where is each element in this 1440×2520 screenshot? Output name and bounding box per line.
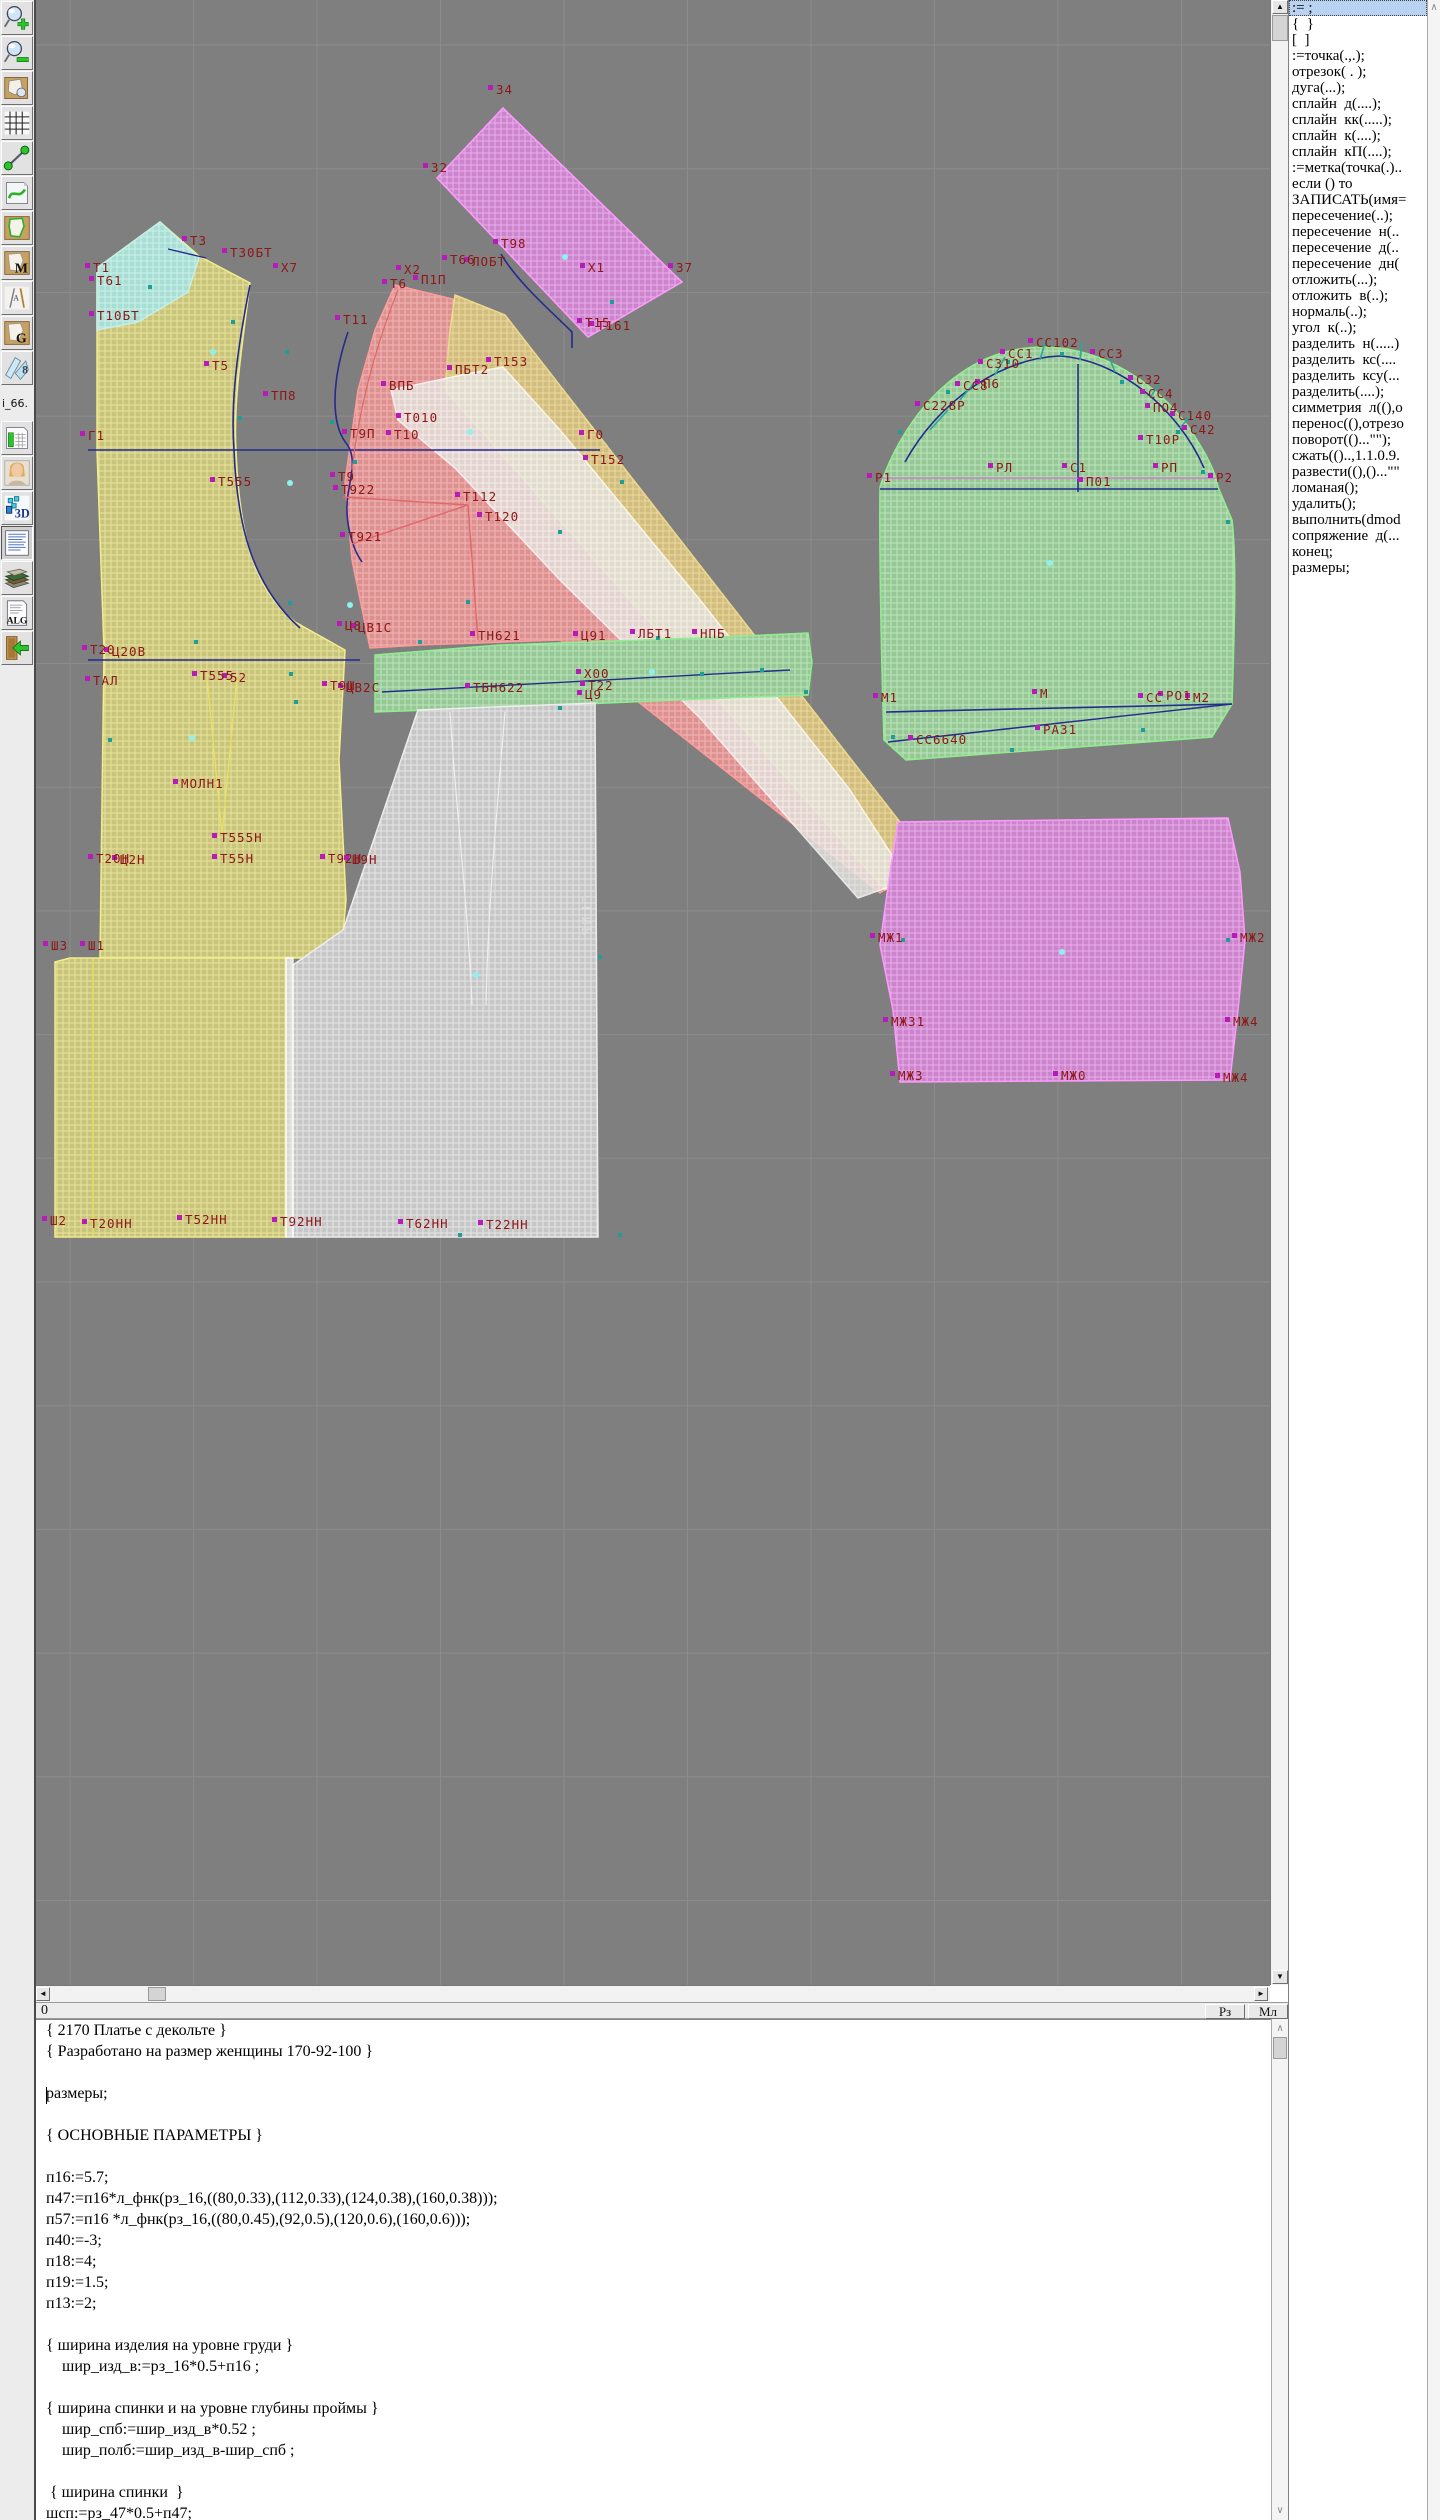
curve-node-marker[interactable] (700, 672, 704, 676)
fold-label: СГИБ (578, 895, 593, 938)
editor-line: шир_изд_в:=рз_16*0.5+п16 ; (36, 2356, 1271, 2377)
point-label: Т921 (348, 529, 382, 544)
point-label: Т3 (190, 233, 207, 248)
point-marker[interactable] (88, 854, 93, 859)
point-marker[interactable] (80, 941, 85, 946)
function-item[interactable]: перенос((),отрезо (1289, 416, 1427, 432)
script-editor[interactable]: { 2170 Платье с декольте }{ Разработано … (36, 2019, 1271, 2520)
curve-node-marker[interactable] (1141, 728, 1145, 732)
curve-node-marker[interactable] (946, 390, 950, 394)
editor-line: { ширина изделия на уровне груди } (36, 2335, 1271, 2356)
point-marker[interactable] (382, 279, 387, 284)
editor-line: п16:=5.7; (36, 2167, 1271, 2188)
point-marker[interactable] (396, 413, 401, 418)
editor-line: п13:=2; (36, 2293, 1271, 2314)
text-cursor (46, 2087, 47, 2104)
function-item[interactable]: { } (1289, 16, 1427, 32)
editor-line (36, 2104, 1271, 2125)
point-marker[interactable] (335, 315, 340, 320)
curve-node-marker[interactable] (466, 600, 470, 604)
point-marker[interactable] (333, 485, 338, 490)
model-photo-icon[interactable] (1, 456, 33, 490)
point-marker[interactable] (210, 477, 215, 482)
point-marker[interactable] (1208, 473, 1213, 478)
function-item[interactable]: отложить(...); (1289, 272, 1427, 288)
editor-scroll-down-icon[interactable]: ∨ (1272, 2505, 1288, 2516)
point-label: Т92НН (280, 1214, 323, 1229)
curve-node-marker[interactable] (294, 700, 298, 704)
point-label: С1 (1070, 460, 1087, 475)
function-item[interactable]: удалить(); (1289, 496, 1427, 512)
curve-node-marker[interactable] (285, 350, 289, 354)
function-list-panel: := ;{ }[ ]:=точка(.,.);отрезок( . );дуга… (1288, 0, 1427, 2520)
vscroll-thumb[interactable] (1272, 15, 1288, 41)
point-label: Х7 (281, 260, 298, 275)
point-label: МЖ1 (878, 930, 904, 945)
point-marker[interactable] (192, 671, 197, 676)
point-marker[interactable] (579, 430, 584, 435)
point-marker[interactable] (212, 854, 217, 859)
function-item[interactable]: конец; (1289, 544, 1427, 560)
point-label: Т6 (390, 276, 407, 291)
point-label: ПО4 (1153, 400, 1179, 415)
editor-line: п47:=п16*л_фнк(рз_16,((80,0.33),(112,0.3… (36, 2188, 1271, 2209)
pattern-cad-app: MAG8i_66.3DALG Т1Т61Т3Т30БТХ7Т10БТТ5Т11Т… (0, 0, 1440, 2520)
point-label: ТАЛ (93, 673, 119, 688)
editor-line: шсп:=рз_47*0.5+п47; (36, 2503, 1271, 2520)
point-label: Т22НН (486, 1217, 529, 1232)
point-marker[interactable] (386, 430, 391, 435)
curve-node-marker[interactable] (898, 430, 902, 434)
point-label: СС102 (1036, 335, 1079, 350)
size-table-icon[interactable] (1, 421, 33, 455)
point-marker[interactable] (580, 263, 585, 268)
point-marker[interactable] (1128, 375, 1133, 380)
panel-vscrollbar[interactable]: ∧ (1427, 0, 1440, 2520)
point-marker[interactable] (1000, 349, 1005, 354)
editor-line: { ширина спинки и на уровне глубины прой… (36, 2398, 1271, 2419)
function-item[interactable]: сплайн к(....); (1289, 128, 1427, 144)
status-bar: 0 Рз Мл (36, 2002, 1288, 2019)
function-item[interactable]: дуга(...); (1289, 80, 1427, 96)
point-marker[interactable] (340, 532, 345, 537)
point-label: МОЛН1 (181, 776, 224, 791)
svg-text:G: G (16, 332, 27, 347)
point-label: Т55Н (220, 851, 254, 866)
curve-node-marker[interactable] (598, 955, 602, 959)
pattern-piece-front-skirt-panel[interactable] (55, 958, 286, 1237)
point-marker[interactable] (478, 1220, 483, 1225)
point-label: ТП8 (271, 388, 297, 403)
point-marker[interactable] (82, 1219, 87, 1224)
editor-scroll-up-icon[interactable]: ∧ (1272, 2023, 1288, 2034)
editor-line (36, 2314, 1271, 2335)
point-label: М2 (1193, 690, 1210, 705)
point-marker[interactable] (1153, 463, 1158, 468)
point-marker[interactable] (488, 85, 493, 90)
function-item[interactable]: разделить н(.....) (1289, 336, 1427, 352)
editor-line: п19:=1.5; (36, 2272, 1271, 2293)
pattern-sheet-icon[interactable] (1, 71, 33, 105)
point-marker[interactable] (1215, 1073, 1220, 1078)
point-marker[interactable] (915, 401, 920, 406)
function-item[interactable]: нормаль(..); (1289, 304, 1427, 320)
point-label: ПБТ2 (455, 362, 489, 377)
exit-icon[interactable] (1, 631, 33, 665)
point-marker[interactable] (381, 381, 386, 386)
function-item[interactable]: :=метка(точка(.).. (1289, 160, 1427, 176)
point-marker[interactable] (583, 455, 588, 460)
grid-icon[interactable] (1, 106, 33, 140)
point-label: ВПБ (389, 378, 415, 393)
editor-line: { 2170 Платье с декольте } (36, 2020, 1271, 2041)
rz-button[interactable]: Рз (1205, 2004, 1245, 2019)
curve-node-marker[interactable] (804, 690, 808, 694)
point-marker[interactable] (576, 669, 581, 674)
pattern-piece-front-bodice[interactable] (97, 222, 346, 958)
point-label: Т10Р (1146, 432, 1180, 447)
function-item[interactable]: сплайн кк(.....); (1289, 112, 1427, 128)
curve-node-marker[interactable] (353, 460, 357, 464)
point-label: П1П (421, 272, 447, 287)
point-label: М1 (881, 690, 898, 705)
point-marker[interactable] (455, 492, 460, 497)
curve-node-marker[interactable] (1060, 352, 1064, 356)
point-marker[interactable] (1032, 689, 1037, 694)
point-label: Т52НН (185, 1212, 228, 1227)
curve-node-marker[interactable] (231, 320, 235, 324)
point-marker[interactable] (177, 1215, 182, 1220)
point-label: М (1040, 686, 1049, 701)
piece-center-dot (1047, 560, 1053, 566)
point-marker[interactable] (883, 1017, 888, 1022)
editor-line: шир_полб:=шир_изд_в-шир_спб ; (36, 2440, 1271, 2461)
point-label: СС4 (1148, 386, 1174, 401)
piece-center-dot (562, 254, 568, 260)
point-label: Т555 (218, 474, 252, 489)
function-item[interactable]: отрезок( . ); (1289, 64, 1427, 80)
function-item[interactable]: разделить кс(.... (1289, 352, 1427, 368)
function-item[interactable]: сопряжение д(... (1289, 528, 1427, 544)
function-item[interactable]: если () то (1289, 176, 1427, 192)
point-marker[interactable] (988, 463, 993, 468)
point-marker[interactable] (1090, 349, 1095, 354)
point-marker[interactable] (1062, 463, 1067, 468)
ruler-8-icon[interactable]: 8 (1, 351, 33, 385)
point-marker[interactable] (173, 779, 178, 784)
function-item[interactable]: пересечение(..); (1289, 208, 1427, 224)
point-marker[interactable] (870, 933, 875, 938)
curve-node-marker[interactable] (891, 735, 895, 739)
curve-node-marker[interactable] (238, 416, 242, 420)
point-marker[interactable] (470, 631, 475, 636)
svg-text:A: A (13, 294, 19, 303)
point-marker[interactable] (337, 621, 342, 626)
alg-document-icon[interactable]: ALG (1, 596, 33, 630)
point-marker[interactable] (442, 255, 447, 260)
pattern-outline-icon[interactable] (1, 211, 33, 245)
point-label: С228Р (923, 398, 966, 413)
piece-center-dot (649, 669, 655, 675)
point-label: РП (1161, 460, 1178, 475)
scroll-right-icon[interactable]: ► (1254, 1987, 1268, 2001)
scroll-left-icon[interactable]: ◄ (36, 1987, 50, 2001)
function-item[interactable]: :=точка(.,.); (1289, 48, 1427, 64)
point-label: Т10БТ (97, 308, 140, 323)
curve-node-marker[interactable] (610, 300, 614, 304)
point-marker[interactable] (89, 311, 94, 316)
point-label: П6 (983, 376, 1000, 391)
editor-line: { Разработано на размер женщины 170-92-1… (36, 2041, 1271, 2062)
point-label: Т555 (200, 668, 234, 683)
function-item[interactable]: := ; (1289, 0, 1427, 16)
curve-node-marker[interactable] (620, 480, 624, 484)
point-label: Ц9 (585, 687, 602, 702)
point-marker[interactable] (1138, 693, 1143, 698)
point-marker[interactable] (1145, 403, 1150, 408)
point-marker[interactable] (573, 631, 578, 636)
point-label: Т152 (591, 452, 625, 467)
editor-line: { ОСНОВНЫЕ ПАРАМЕТРЫ } (36, 2125, 1271, 2146)
point-marker[interactable] (320, 854, 325, 859)
point-marker[interactable] (630, 629, 635, 634)
piece-center-dot (1059, 949, 1065, 955)
curve-node-marker[interactable] (1226, 938, 1230, 942)
curve-node-marker[interactable] (418, 640, 422, 644)
point-marker[interactable] (908, 735, 913, 740)
point-label: Ц91 (581, 628, 607, 643)
point-marker[interactable] (577, 690, 582, 695)
canvas-hscrollbar[interactable]: ◄ ► (36, 1985, 1270, 2003)
hscroll-thumb[interactable] (148, 1987, 166, 2001)
point-marker[interactable] (668, 263, 673, 268)
point-label: Т010 (404, 410, 438, 425)
curve-node-marker[interactable] (558, 530, 562, 534)
pattern-piece-fold-strip[interactable] (286, 958, 293, 1237)
drafting-tools-icon[interactable]: A (1, 281, 33, 315)
function-item[interactable]: развести((),()..."" (1289, 464, 1427, 480)
function-item[interactable]: размеры; (1289, 560, 1427, 576)
function-item[interactable]: сплайн д(....); (1289, 96, 1427, 112)
point-marker[interactable] (273, 263, 278, 268)
point-label: 37 (676, 260, 693, 275)
function-item[interactable]: [ ] (1289, 32, 1427, 48)
zoom-out-icon[interactable] (1, 36, 33, 70)
point-marker[interactable] (867, 473, 872, 478)
point-marker[interactable] (85, 263, 90, 268)
point-label: Т20НН (90, 1216, 133, 1231)
point-marker[interactable] (80, 431, 85, 436)
point-label: Т98 (501, 236, 527, 251)
point-marker[interactable] (342, 429, 347, 434)
point-label: Г1 (88, 428, 105, 443)
curve-node-marker[interactable] (618, 1233, 622, 1237)
point-marker[interactable] (890, 1071, 895, 1076)
curve-node-marker[interactable] (760, 668, 764, 672)
point-label: РО1 (1166, 688, 1192, 703)
point-marker[interactable] (1140, 389, 1145, 394)
point-marker[interactable] (1028, 338, 1033, 343)
function-item[interactable]: ЗАПИСАТЬ(имя= (1289, 192, 1427, 208)
function-item[interactable]: пересечение н(.. (1289, 224, 1427, 240)
point-marker[interactable] (398, 1219, 403, 1224)
editor-line: размеры; (36, 2083, 1271, 2104)
curve-node-marker[interactable] (194, 640, 198, 644)
curve-node-marker[interactable] (458, 1233, 462, 1237)
curve-node-marker[interactable] (288, 601, 292, 605)
point-marker[interactable] (222, 248, 227, 253)
point-marker[interactable] (423, 163, 428, 168)
point-marker[interactable] (212, 833, 217, 838)
point-label: Т10 (394, 427, 420, 442)
point-marker[interactable] (204, 361, 209, 366)
3d-icon[interactable]: 3D (1, 491, 33, 525)
function-item[interactable]: пересечение д(.. (1289, 240, 1427, 256)
point-marker[interactable] (1035, 725, 1040, 730)
point-label: ЦВ2С (346, 680, 380, 695)
pattern-drawing[interactable]: Т1Т61Т3Т30БТХ7Т10БТТ5Т11ТП8Г1Т6Х2П1П3432… (36, 0, 1270, 1985)
curve-node-marker[interactable] (558, 706, 562, 710)
function-item[interactable]: сжать(()..,1.1.0.9. (1289, 448, 1427, 464)
point-marker[interactable] (272, 1217, 277, 1222)
point-marker[interactable] (447, 365, 452, 370)
scroll-up-icon[interactable]: ▲ (1272, 0, 1288, 14)
zoom-in-icon[interactable] (1, 1, 33, 35)
point-label: Р1 (875, 470, 892, 485)
editor-line (36, 2146, 1271, 2167)
curve-node-marker[interactable] (108, 738, 112, 742)
canvas-vscrollbar[interactable]: ▲ ▼ (1270, 0, 1289, 1985)
point-label: Ц2Н (120, 852, 146, 867)
point-label: СС3 (1098, 346, 1124, 361)
function-item[interactable]: отложить в(..); (1289, 288, 1427, 304)
point-label: МЖ4 (1223, 1070, 1249, 1085)
point-label: Ш9Н (352, 852, 378, 867)
point-marker[interactable] (43, 941, 48, 946)
function-item[interactable]: выполнить(dmod (1289, 512, 1427, 528)
point-label: ТБН622 (473, 680, 524, 695)
point-label: Т11 (343, 312, 369, 327)
point-label: ЛБТ1 (638, 626, 672, 641)
curve-node-marker[interactable] (289, 672, 293, 676)
point-marker[interactable] (873, 693, 878, 698)
point-label: МЖ2 (1240, 930, 1266, 945)
curve-node-marker[interactable] (330, 420, 334, 424)
point-marker[interactable] (182, 236, 187, 241)
svg-text:3D: 3D (15, 507, 30, 521)
page-curve-icon[interactable] (1, 176, 33, 210)
svg-text:ALG: ALG (7, 616, 28, 627)
point-label: Ц20В (112, 644, 146, 659)
point-label: Т30БТ (230, 245, 273, 260)
editor-line: шир_спб:=шир_изд_в*0.52 ; (36, 2419, 1271, 2440)
point-label: Ш1 (88, 938, 105, 953)
function-item[interactable]: разделить ксу(... (1289, 368, 1427, 384)
point-label: Т120 (485, 509, 519, 524)
piece-center-dot (287, 480, 293, 486)
scroll-down-icon[interactable]: ▼ (1272, 1970, 1288, 1984)
editor-line: { ширина спинки } (36, 2482, 1271, 2503)
editor-line: п40:=-3; (36, 2230, 1271, 2251)
point-marker[interactable] (465, 683, 470, 688)
point-label: СС6640 (916, 732, 967, 747)
status-value: 0 (41, 2003, 48, 2019)
point-marker[interactable] (692, 629, 697, 634)
point-label: СС (1146, 690, 1163, 705)
point-label: С42 (1190, 422, 1216, 437)
point-label: Т9П (350, 426, 376, 441)
function-item[interactable]: разделить(....); (1289, 384, 1427, 400)
measure-icon[interactable] (1, 141, 33, 175)
drawing-canvas[interactable]: Т1Т61Т3Т30БТХ7Т10БТТ5Т11ТП8Г1Т6Х2П1П3432… (36, 0, 1270, 1985)
point-marker[interactable] (263, 391, 268, 396)
point-marker[interactable] (1078, 477, 1083, 482)
point-marker[interactable] (955, 381, 960, 386)
piece-center-dot (189, 735, 195, 741)
point-marker[interactable] (82, 645, 87, 650)
function-item[interactable]: ломаная(); (1289, 480, 1427, 496)
point-marker[interactable] (1182, 425, 1187, 430)
point-marker[interactable] (477, 512, 482, 517)
point-label: ТН621 (478, 628, 521, 643)
curve-node-marker[interactable] (148, 285, 152, 289)
point-marker[interactable] (577, 318, 582, 323)
point-marker[interactable] (396, 265, 401, 270)
function-item[interactable]: сплайн кП(....); (1289, 144, 1427, 160)
point-marker[interactable] (42, 1216, 47, 1221)
point-marker[interactable] (89, 276, 94, 281)
editor-vscroll-thumb[interactable] (1273, 2037, 1287, 2059)
editor-line: п57:=п16 *л_фнк(рз_16,((80,0.45),(92,0.5… (36, 2209, 1271, 2230)
books-icon[interactable] (1, 561, 33, 595)
piece-center-dot (467, 429, 473, 435)
curve-node-marker[interactable] (1120, 380, 1124, 384)
curve-node-marker[interactable] (1010, 748, 1014, 752)
point-label: Т161 (597, 318, 631, 333)
function-item[interactable]: поворот(()...""); (1289, 432, 1427, 448)
curve-node-marker[interactable] (1201, 470, 1205, 474)
point-marker[interactable] (1138, 435, 1143, 440)
point-label: С310 (986, 356, 1020, 371)
pattern-m-icon[interactable]: M (1, 246, 33, 280)
text-document-icon[interactable] (1, 526, 33, 560)
function-item[interactable]: пересечение дн( (1289, 256, 1427, 272)
function-item[interactable]: угол к(..); (1289, 320, 1427, 336)
function-item[interactable]: симметрия л((),о (1289, 400, 1427, 416)
curve-node-marker[interactable] (1226, 520, 1230, 524)
point-marker[interactable] (85, 676, 90, 681)
point-label: РА31 (1043, 722, 1077, 737)
point-marker[interactable] (1225, 1017, 1230, 1022)
point-marker[interactable] (1053, 1071, 1058, 1076)
i66-label[interactable]: i_66. (1, 386, 33, 420)
point-label: 32 (431, 160, 448, 175)
point-marker[interactable] (322, 681, 327, 686)
point-label: Т922 (341, 482, 375, 497)
editor-vscrollbar[interactable]: ∧ ∨ (1271, 2019, 1288, 2520)
pattern-g-icon[interactable]: G (1, 316, 33, 350)
point-marker[interactable] (1232, 933, 1237, 938)
point-marker[interactable] (493, 239, 498, 244)
point-label: П01 (1086, 474, 1112, 489)
panel-scroll-up-icon[interactable]: ∧ (1428, 2, 1440, 13)
ml-button[interactable]: Мл (1248, 2004, 1288, 2019)
point-marker[interactable] (330, 472, 335, 477)
point-label: Т62НН (406, 1216, 449, 1231)
point-label: 34 (496, 82, 513, 97)
point-marker[interactable] (978, 359, 983, 364)
point-marker[interactable] (580, 681, 585, 686)
